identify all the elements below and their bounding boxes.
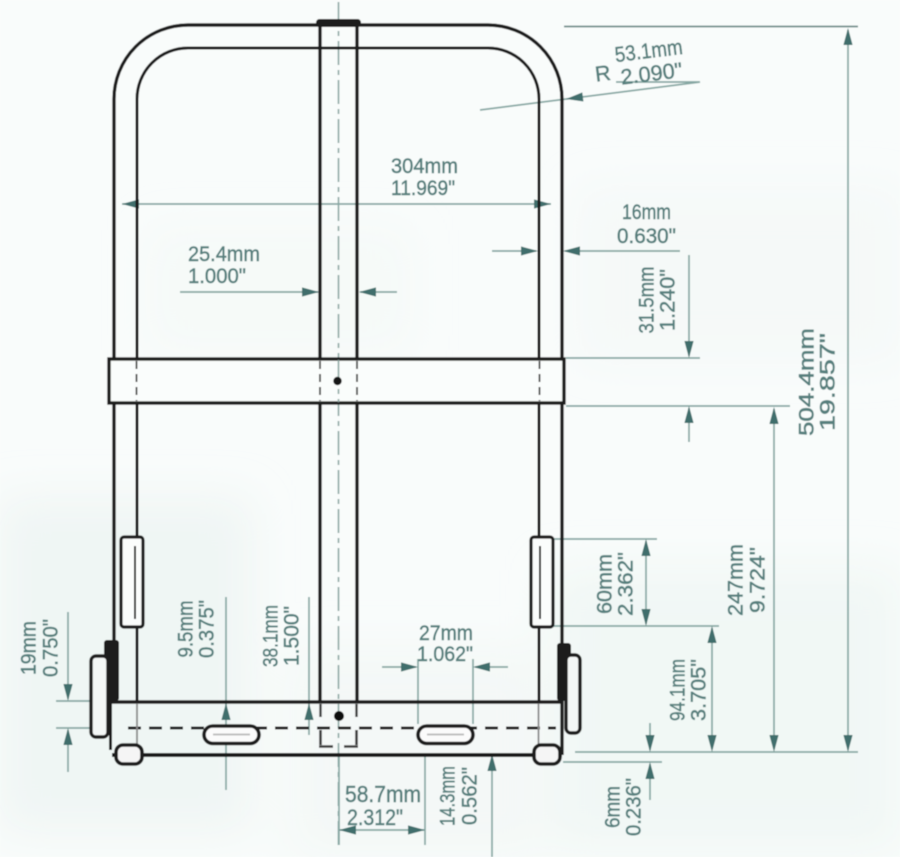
svg-text:0.236": 0.236"	[622, 778, 646, 836]
svg-text:R: R	[594, 61, 612, 87]
svg-text:0.630": 0.630"	[617, 224, 676, 248]
svg-text:0.750": 0.750"	[39, 619, 63, 677]
svg-text:11.969": 11.969"	[391, 176, 455, 200]
svg-text:25.4mm: 25.4mm	[188, 242, 260, 266]
svg-text:58.7mm: 58.7mm	[345, 781, 421, 807]
svg-text:1.062": 1.062"	[417, 642, 473, 666]
svg-text:247mm: 247mm	[724, 544, 748, 616]
svg-text:2.362": 2.362"	[614, 552, 638, 616]
svg-text:1.240": 1.240"	[656, 269, 680, 331]
svg-text:0.375": 0.375"	[195, 600, 219, 658]
svg-text:2.312": 2.312"	[347, 805, 403, 830]
svg-text:3.705": 3.705"	[687, 659, 711, 721]
svg-text:304mm: 304mm	[391, 154, 458, 178]
svg-text:19mm: 19mm	[17, 621, 41, 675]
svg-text:14.3mm: 14.3mm	[436, 766, 460, 826]
svg-text:19.857": 19.857"	[816, 333, 840, 431]
svg-text:1.000": 1.000"	[188, 264, 246, 288]
svg-text:0.562": 0.562"	[458, 767, 482, 825]
svg-text:9.724": 9.724"	[746, 547, 770, 613]
svg-text:16mm: 16mm	[622, 200, 671, 224]
svg-text:1.500": 1.500"	[280, 606, 304, 666]
